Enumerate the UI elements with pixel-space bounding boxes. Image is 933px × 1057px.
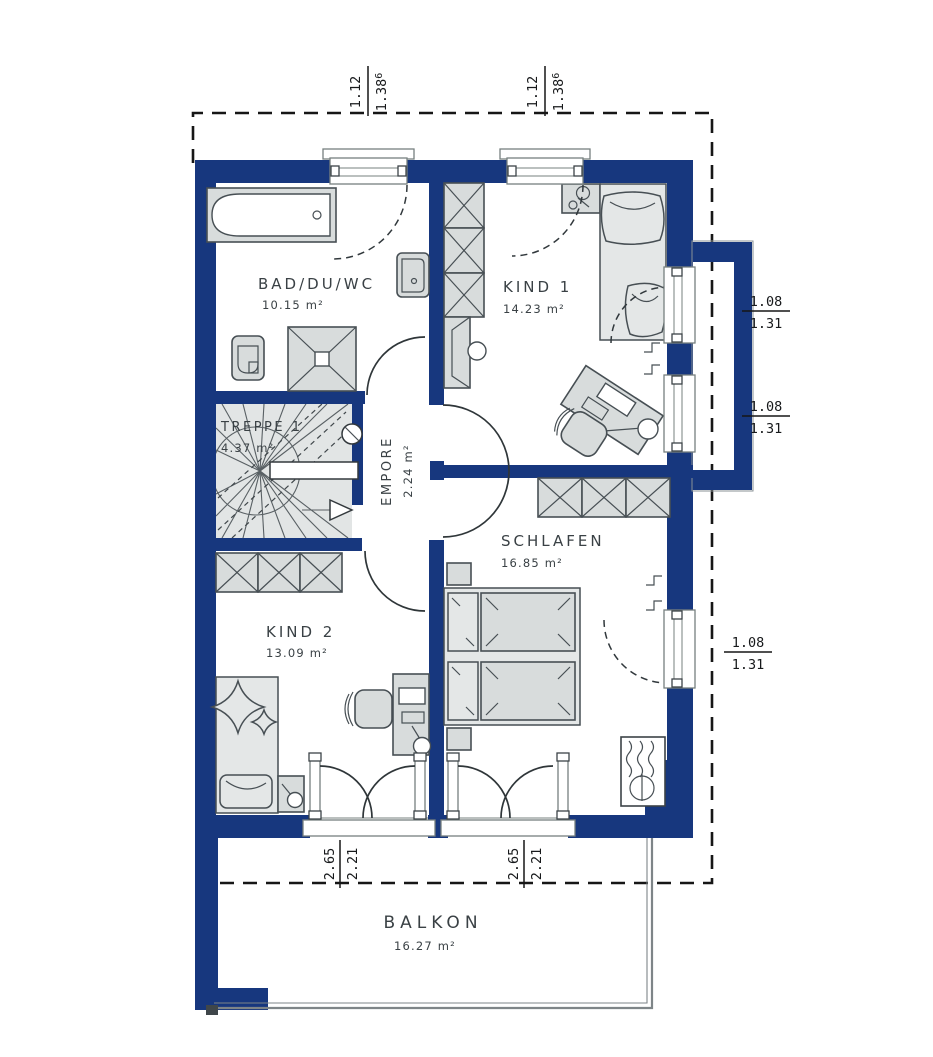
svg-text:1.386: 1.386 — [551, 73, 567, 112]
pillow — [448, 593, 478, 651]
svg-text:1.31: 1.31 — [750, 316, 783, 332]
wardrobe — [538, 478, 670, 517]
desk — [393, 674, 431, 755]
open-shelf — [444, 317, 486, 388]
room-label: KIND 1 — [503, 278, 572, 296]
wardrobe — [444, 183, 484, 317]
room-area: 4.37 m² — [221, 441, 274, 455]
radiator — [621, 737, 665, 806]
lamp — [288, 793, 303, 808]
bad-window-swing — [333, 185, 407, 259]
window-bay-lower — [664, 375, 695, 452]
double-bed — [444, 588, 580, 725]
level-mark — [644, 343, 660, 352]
dimension-right-3: 1.08 1.31 — [724, 635, 772, 673]
bed — [212, 677, 278, 813]
svg-text:2.21: 2.21 — [345, 848, 361, 881]
dimension-bottom-2: 2.65 2.21 — [506, 840, 545, 888]
room-area: 14.23 m² — [503, 302, 565, 316]
pillow — [601, 192, 664, 244]
room-area: 16.85 m² — [501, 556, 563, 570]
bay-walls — [692, 241, 753, 491]
room-area: 10.15 m² — [262, 298, 324, 312]
floor-plan-svg: BAD/DU/WC 10.15 m² — [0, 0, 933, 1057]
window-bay-upper — [664, 267, 695, 343]
room-label: TREPPE 1 — [220, 420, 302, 435]
room-area: 2.24 m² — [401, 444, 415, 497]
svg-text:1.08: 1.08 — [750, 399, 783, 415]
svg-text:1.08: 1.08 — [732, 635, 765, 651]
svg-text:2.65: 2.65 — [322, 848, 338, 881]
svg-text:1.12: 1.12 — [348, 76, 364, 109]
room-label: BAD/DU/WC — [258, 275, 375, 293]
kind2-door-arc — [365, 551, 425, 611]
desk-chair — [345, 690, 392, 728]
desk-lamp — [414, 738, 431, 755]
french-door-schlafen — [441, 753, 575, 836]
nightstand — [447, 563, 471, 585]
wardrobe — [216, 553, 342, 592]
desk-lamp — [638, 419, 658, 439]
dimension-bottom-1: 2.65 2.21 — [322, 840, 361, 888]
level-mark — [646, 576, 662, 585]
floor-plan-canvas: BAD/DU/WC 10.15 m² — [0, 0, 933, 1057]
level-mark — [646, 601, 662, 610]
room-kind2: KIND 2 13.09 m² — [212, 553, 431, 813]
mattress — [481, 662, 575, 720]
railing-post — [206, 1005, 218, 1015]
stair-handrail — [270, 462, 358, 479]
window-bad-top — [323, 149, 414, 184]
nightstand — [278, 776, 304, 812]
pillow — [448, 662, 478, 720]
svg-text:1.386: 1.386 — [374, 73, 390, 112]
svg-text:1.08: 1.08 — [750, 294, 783, 310]
room-area: 16.27 m² — [394, 939, 456, 953]
room-kind1: KIND 1 14.23 m² — [444, 183, 667, 460]
window-schlafen — [664, 610, 695, 688]
room-bad: BAD/DU/WC 10.15 m² — [207, 185, 429, 395]
schlafen-window-swing — [604, 620, 667, 683]
mattress — [481, 593, 575, 651]
shower — [288, 327, 356, 391]
room-label: KIND 2 — [266, 623, 335, 641]
dimension-top-1: 1.12 1.386 — [348, 66, 390, 116]
svg-text:2.21: 2.21 — [529, 848, 545, 881]
stool — [468, 342, 486, 360]
french-door-kind2 — [303, 753, 435, 836]
bed — [600, 184, 666, 340]
pillow — [220, 775, 272, 808]
dimension-top-2: 1.12 1.386 — [525, 66, 567, 116]
svg-text:2.65: 2.65 — [506, 848, 522, 881]
bad-door-arc — [367, 337, 425, 395]
svg-text:1.31: 1.31 — [732, 657, 765, 673]
room-label: BALKON — [383, 913, 482, 933]
nightstand — [447, 728, 471, 750]
room-area: 13.09 m² — [266, 646, 328, 660]
balcony: BALKON 16.27 m² — [206, 838, 652, 1015]
svg-text:1.12: 1.12 — [525, 76, 541, 109]
room-label: EMPORE — [380, 436, 395, 506]
window-kind1-top — [500, 149, 590, 184]
level-mark — [644, 365, 660, 374]
svg-text:1.31: 1.31 — [750, 421, 783, 437]
room-label: SCHLAFEN — [501, 532, 605, 550]
